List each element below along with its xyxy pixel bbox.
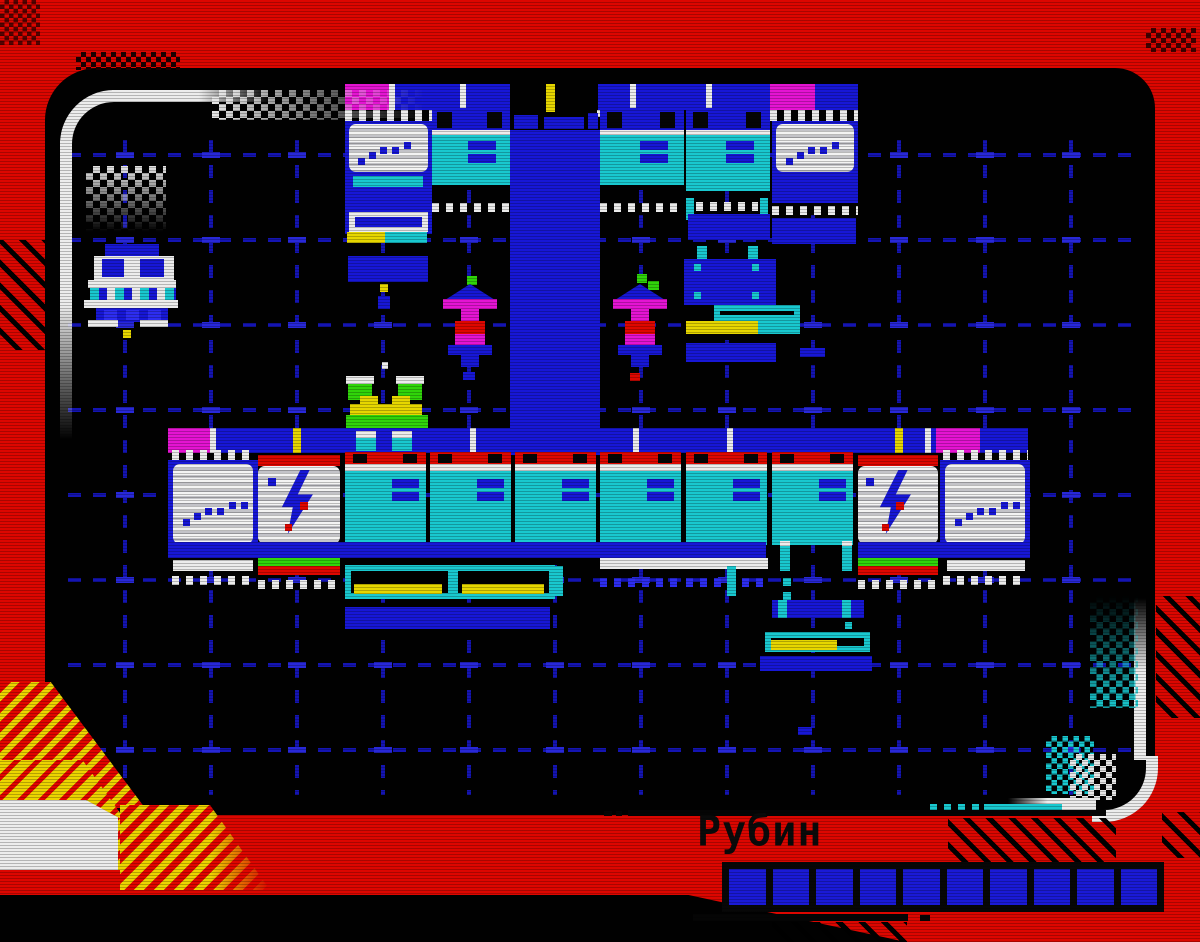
- gauge-dot: [989, 508, 996, 515]
- bracket-dither-patch: [1070, 754, 1116, 800]
- pipe-outline: [714, 305, 800, 321]
- cabinet-strip: [600, 464, 681, 471]
- frame-hatch-right: [1156, 596, 1200, 718]
- hud-dot-decor: [920, 915, 930, 921]
- gauge-dot: [404, 142, 411, 149]
- gauge-dot: [820, 147, 827, 154]
- gauge-dot: [797, 152, 804, 159]
- pipe-base: [345, 607, 550, 629]
- lantern-neck: [631, 309, 649, 321]
- walkway-tick: [706, 84, 712, 110]
- beam-peg: [842, 600, 851, 618]
- top-walkway-blue-right: [598, 84, 770, 110]
- cabinet-strip: [686, 464, 767, 471]
- lantern-magenta: [455, 334, 485, 345]
- peg: [697, 246, 707, 259]
- bolt-top: [258, 455, 340, 466]
- lantern-stem: [631, 355, 649, 367]
- walkway-tick: [630, 84, 636, 110]
- energy-segment: [1034, 869, 1071, 905]
- dot-cyan: [845, 622, 852, 629]
- frame-dots-decor: [76, 52, 180, 70]
- pipe-fill-yellow: [462, 584, 544, 594]
- lantern-magenta: [625, 334, 655, 345]
- under-dots-blue: [600, 578, 684, 587]
- cabinet-vent: [438, 454, 452, 463]
- pipe-cyan: [758, 321, 800, 334]
- machine-dash: [640, 141, 668, 150]
- accent-blue: [798, 727, 812, 735]
- cabinet-dash: [562, 479, 589, 488]
- cabinet-dash: [647, 479, 674, 488]
- walkway-tick: [470, 428, 476, 453]
- dot-cyan: [783, 592, 791, 600]
- machine-vent: [607, 112, 622, 128]
- player-foot-cap: [356, 431, 376, 438]
- player-foot: [392, 438, 412, 451]
- cyan-tick: [554, 566, 563, 596]
- trim-dots: [432, 203, 510, 212]
- cabinet-vent: [523, 454, 537, 463]
- meter-cyan: [385, 232, 427, 243]
- machine-dash: [468, 154, 496, 163]
- vehicle-window: [102, 259, 124, 277]
- under-dots: [858, 580, 938, 589]
- column-dash: [514, 115, 538, 129]
- lantern-light: [467, 276, 477, 285]
- blue-band: [688, 214, 770, 240]
- machine-dash: [726, 141, 754, 150]
- cyan-tick: [727, 566, 736, 596]
- machine-vent: [746, 112, 761, 128]
- frame-hatch-left: [0, 240, 45, 350]
- dot-cyan: [783, 578, 791, 586]
- vehicle-roof: [105, 244, 159, 256]
- pipe-divider: [448, 565, 458, 599]
- blue-bar: [686, 343, 776, 362]
- gauge-dot: [241, 502, 248, 509]
- bolt-top: [858, 455, 938, 466]
- energy-bar: [722, 862, 1164, 912]
- top-walkway-magenta-right: [770, 84, 815, 110]
- cabinet-vent: [488, 454, 502, 463]
- walkway-tick-yellow: [895, 428, 903, 453]
- peg: [842, 546, 852, 571]
- walkway-tick: [633, 428, 639, 453]
- gauge-dot: [392, 147, 399, 154]
- cabinet-strip: [772, 464, 853, 471]
- vehicle-wheel: [104, 310, 117, 320]
- gauge-dot: [369, 152, 376, 159]
- lantern-red: [625, 321, 655, 334]
- gauge-dot: [808, 147, 815, 154]
- pipe-fill-yellow: [771, 640, 837, 650]
- cabinet-vent: [403, 454, 417, 463]
- energy-segment: [860, 869, 897, 905]
- top-walkway-blue-end: [815, 84, 858, 110]
- gauge-dot: [205, 508, 212, 515]
- player-dot: [382, 362, 388, 369]
- frame-dots-top-left: [0, 0, 40, 45]
- machine-dash: [468, 141, 496, 150]
- vehicle-grille: [90, 288, 176, 300]
- under-red: [258, 566, 340, 575]
- player-foot: [356, 438, 376, 451]
- energy-segment: [903, 869, 940, 905]
- walkway-tick: [925, 428, 931, 453]
- gauge-dot: [194, 513, 201, 520]
- under-bar-white: [600, 558, 768, 569]
- lantern-cap: [443, 299, 497, 309]
- vehicle-bumper: [84, 300, 178, 308]
- blue-dash: [800, 348, 825, 357]
- box-dot: [752, 292, 759, 299]
- vehicle-window: [140, 259, 164, 277]
- gauge-dot: [358, 158, 365, 165]
- accent-blue: [378, 296, 390, 309]
- vehicle-skid: [88, 320, 118, 327]
- bolt-dot-red: [896, 502, 904, 510]
- gauge-dot: [1013, 502, 1020, 509]
- machine-dash: [726, 154, 754, 163]
- under-red: [858, 566, 938, 575]
- blue-block: [348, 256, 428, 282]
- meter-inner: [355, 217, 422, 227]
- cabinet-strip: [430, 464, 511, 471]
- bracket-dither-patch: [86, 166, 166, 232]
- cabinet-dash: [733, 479, 760, 488]
- lantern-flare: [618, 345, 662, 355]
- lantern-stem: [461, 355, 479, 367]
- lantern-neck: [461, 309, 479, 321]
- beam-peg: [778, 600, 787, 618]
- gauge-dot: [977, 508, 984, 515]
- walkway-tick-yellow: [293, 428, 301, 453]
- cabinet-dash: [819, 492, 846, 501]
- energy-column: [510, 130, 600, 455]
- hud-dot-decor: [616, 811, 622, 816]
- meter-yellow: [347, 232, 385, 243]
- column-dash: [544, 117, 584, 129]
- level-name-label: Рубин: [697, 811, 822, 853]
- under-dots: [943, 576, 1027, 585]
- accent-yellow: [123, 330, 131, 338]
- machine-vent: [693, 112, 708, 128]
- box-dot: [694, 292, 701, 299]
- gauge-dot: [786, 158, 793, 165]
- cabinet-strip: [345, 464, 426, 471]
- cabinet-dash: [477, 492, 504, 501]
- hazard-tick-yellow: [546, 84, 555, 112]
- hud-line-decor: [693, 914, 908, 921]
- gauge-dot: [1001, 502, 1008, 509]
- energy-segment: [729, 869, 766, 905]
- gauge-dot: [955, 519, 962, 526]
- gauge-dot: [229, 502, 236, 509]
- column-dash: [588, 113, 598, 129]
- bolt-dot: [268, 478, 276, 486]
- trim-dots: [770, 110, 858, 121]
- lantern-cap: [613, 299, 667, 309]
- cabinet-dash: [647, 492, 674, 501]
- vehicle-skid: [140, 320, 168, 327]
- pipe-fill-yellow: [354, 584, 442, 594]
- cabinet-dash: [392, 479, 419, 488]
- machine-vent: [487, 112, 502, 128]
- energy-segment: [990, 869, 1027, 905]
- under-bar-white: [947, 560, 1025, 571]
- cabinet-dash: [733, 492, 760, 501]
- trim-dots: [600, 203, 684, 212]
- cabinet-vent: [353, 454, 367, 463]
- gauge-dot: [380, 147, 387, 154]
- trim-dots: [772, 206, 858, 215]
- blue-band: [772, 218, 856, 244]
- player-ear-cap: [396, 376, 424, 384]
- energy-segment: [947, 869, 984, 905]
- under-green: [858, 558, 938, 566]
- lantern-red: [455, 321, 485, 334]
- cabinet-dash: [392, 492, 419, 501]
- energy-segment: [1121, 869, 1158, 905]
- machine-vent: [660, 112, 675, 128]
- player-ear-cap: [346, 376, 374, 384]
- cabinet-dash: [562, 492, 589, 501]
- cabinet-vent: [608, 454, 622, 463]
- gauge-dot: [832, 142, 839, 149]
- bracket-dither-patch: [1090, 596, 1138, 708]
- walkway-blue: [212, 428, 936, 453]
- energy-segment: [1077, 869, 1114, 905]
- vehicle-wheel: [126, 310, 139, 320]
- lantern-roof: [445, 284, 495, 300]
- game-screen: Рубин: [0, 0, 1200, 942]
- under-dots: [172, 576, 254, 585]
- player-foot-cap: [392, 431, 412, 438]
- gauge-dot: [183, 519, 190, 526]
- cabinet-dash: [819, 479, 846, 488]
- trim-dots: [696, 202, 758, 211]
- hud-hatch-decor: [772, 922, 907, 942]
- cabinet-strip: [515, 464, 596, 471]
- lantern-dot: [463, 372, 475, 380]
- cabinet-vent: [573, 454, 587, 463]
- cabinet-vent: [694, 454, 708, 463]
- under-band: [168, 542, 766, 558]
- hud-hatch-decor: [948, 818, 1116, 864]
- pipe-base: [760, 656, 872, 671]
- vehicle-band: [88, 280, 176, 288]
- bolt-dot-red: [300, 502, 308, 510]
- under-bar-white: [173, 560, 253, 571]
- bolt-dot-red: [285, 524, 292, 531]
- under-green: [258, 558, 340, 566]
- peg: [780, 546, 790, 571]
- peg: [748, 246, 758, 259]
- lantern-dot: [630, 373, 640, 381]
- under-dots: [258, 580, 340, 589]
- under-band: [858, 542, 1030, 558]
- bolt-dot: [866, 478, 874, 486]
- machine-dash: [640, 154, 668, 163]
- lantern-light: [637, 274, 647, 283]
- accent-yellow: [380, 284, 388, 292]
- bolt-dot-red: [882, 524, 889, 531]
- cabinet-vent: [658, 454, 672, 463]
- lantern-flare: [448, 345, 492, 355]
- pipe-yellow: [686, 321, 758, 334]
- bracket-dither-tail: [212, 90, 462, 120]
- cabinet-vent: [744, 454, 758, 463]
- lantern-light: [648, 281, 659, 290]
- energy-segment: [773, 869, 810, 905]
- hud-hatch-decor: [1162, 812, 1200, 858]
- cabinet-vent: [780, 454, 794, 463]
- box-dot: [694, 264, 701, 271]
- vehicle-wheel: [148, 310, 161, 320]
- hud-dot-decor: [604, 811, 612, 816]
- frame-dots-top-right: [1146, 28, 1196, 52]
- gauge-slot: [353, 176, 423, 187]
- gauge-dot: [966, 513, 973, 520]
- bracket-bar-vertical: [60, 140, 72, 440]
- box-dot: [752, 264, 759, 271]
- gauge-dot: [217, 508, 224, 515]
- walkway-tick: [727, 428, 733, 453]
- energy-segment: [816, 869, 853, 905]
- cabinet-dash: [477, 479, 504, 488]
- cabinet-vent: [830, 454, 844, 463]
- under-dots-blue: [686, 578, 766, 587]
